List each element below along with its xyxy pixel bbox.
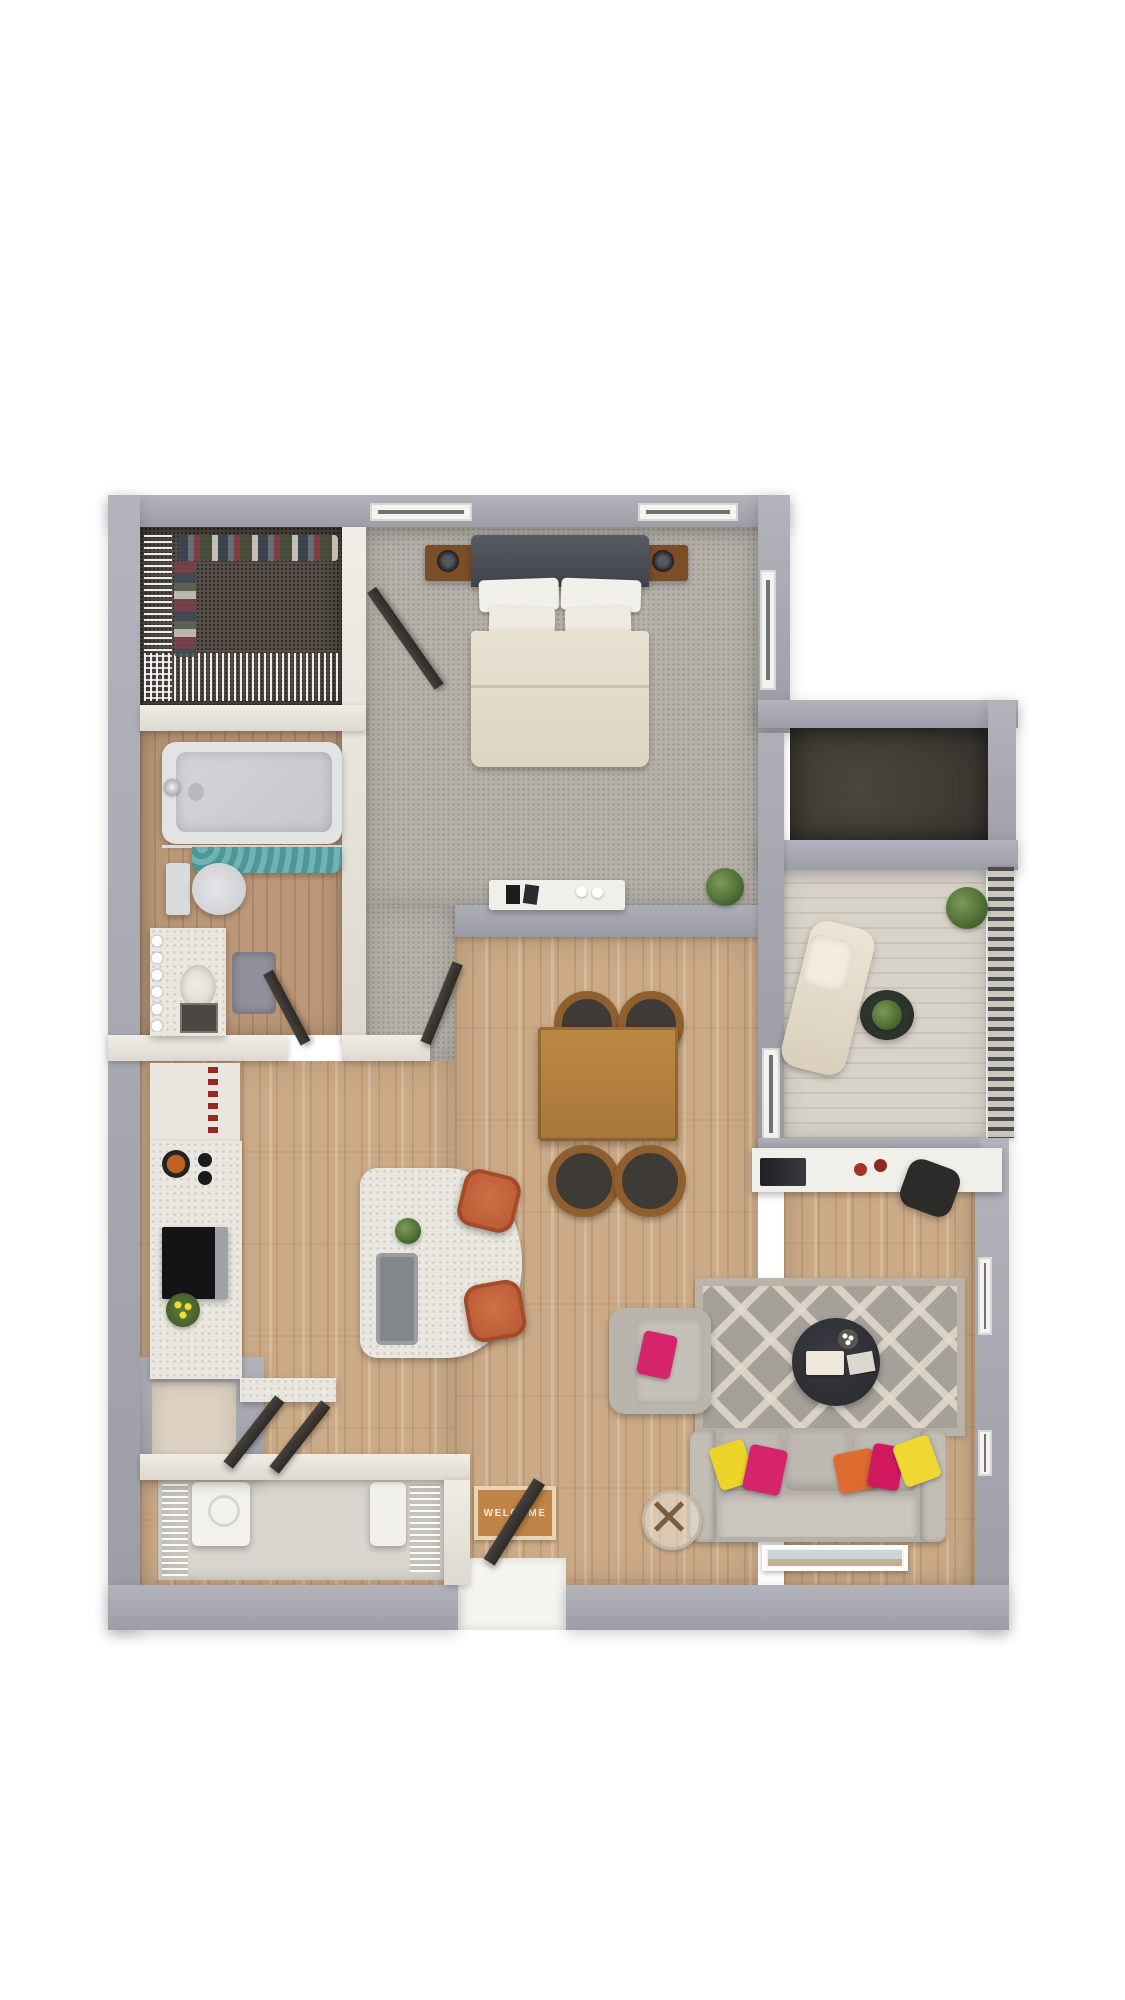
balcony-corner-plant xyxy=(946,887,988,929)
bar-stool-lower xyxy=(461,1277,528,1344)
balcony-sliding-door xyxy=(762,1048,780,1140)
red-mug-1 xyxy=(854,1163,867,1176)
dresser-decor-mug2 xyxy=(592,887,603,898)
outer-wall-bottom-right xyxy=(566,1585,1009,1630)
outer-wall-left xyxy=(108,495,140,1630)
sofa-seat-band xyxy=(718,1493,917,1537)
toilet-bowl xyxy=(192,863,246,915)
closet-bath-right-wall xyxy=(342,527,366,1041)
island-sink xyxy=(376,1253,418,1345)
apartment-floorplan: WELCOME xyxy=(108,495,1018,1635)
bedroom-window-left xyxy=(370,503,472,521)
pantry-shelves xyxy=(150,1063,240,1141)
coffee-table-flowers xyxy=(838,1329,858,1349)
wing-wall-top xyxy=(758,700,1018,728)
tub-drain xyxy=(188,783,204,801)
burner-1 xyxy=(198,1153,212,1167)
bed-duvet xyxy=(471,631,649,767)
laundry-wire-shelf-right xyxy=(410,1484,440,1572)
storage-room-floor xyxy=(790,728,992,840)
laundry-wire-shelf-left xyxy=(162,1484,188,1576)
outer-wall-right-lower xyxy=(975,1138,1009,1630)
lamp-right xyxy=(652,550,674,572)
laptop xyxy=(760,1158,806,1186)
laundry-top-wall xyxy=(140,1454,470,1480)
dining-chair-bottom-left xyxy=(548,1145,620,1217)
floorplan-canvas: WELCOME xyxy=(0,0,1125,2000)
bedroom-window-right xyxy=(638,503,738,521)
duvet-fold xyxy=(471,685,649,688)
bedroom-plant xyxy=(706,868,744,906)
balcony-railing xyxy=(988,867,1014,1138)
living-window-upper xyxy=(978,1257,992,1335)
bathroom-bottom-wall-a xyxy=(108,1035,288,1061)
red-spice-jars xyxy=(208,1067,218,1137)
artwork-image xyxy=(768,1550,902,1566)
closet-wire-shelf-bottom xyxy=(144,653,342,701)
island-plant xyxy=(395,1218,421,1244)
dining-table xyxy=(538,1027,678,1141)
entry-threshold xyxy=(458,1558,566,1630)
bedroom-side-window xyxy=(760,570,776,690)
tub-faucet xyxy=(164,779,180,795)
entry-left-wall xyxy=(444,1480,470,1585)
outer-wall-bottom-left xyxy=(108,1585,458,1630)
toilet-tank xyxy=(166,863,190,915)
vanity-hollywood-bulbs xyxy=(150,932,165,1032)
red-mug-2 xyxy=(874,1159,887,1172)
hanging-clothes-top xyxy=(178,535,338,561)
cooktop-pan xyxy=(162,1150,190,1178)
lamp-left xyxy=(437,550,459,572)
hanging-clothes-left xyxy=(174,561,196,657)
closet-bottom-wall xyxy=(140,705,366,731)
living-window-lower xyxy=(978,1430,992,1476)
bathroom-bottom-wall-b xyxy=(342,1035,430,1061)
burner-2 xyxy=(198,1171,212,1185)
storage-wall-bottom xyxy=(758,840,1018,870)
range-oven xyxy=(162,1227,228,1299)
yellow-flowers xyxy=(166,1293,200,1327)
dresser-decor-books xyxy=(506,885,520,904)
dryer xyxy=(370,1482,406,1546)
washer-door xyxy=(208,1495,240,1527)
kitchen-counter-return xyxy=(240,1378,336,1402)
dining-chair-bottom-right xyxy=(614,1145,686,1217)
balcony-table-plant xyxy=(872,1000,902,1030)
vanity-drawers xyxy=(180,1003,218,1033)
dresser-decor-mug1 xyxy=(576,886,587,897)
dresser-decor-books2 xyxy=(523,884,540,905)
coffee-table-tray xyxy=(806,1351,844,1375)
